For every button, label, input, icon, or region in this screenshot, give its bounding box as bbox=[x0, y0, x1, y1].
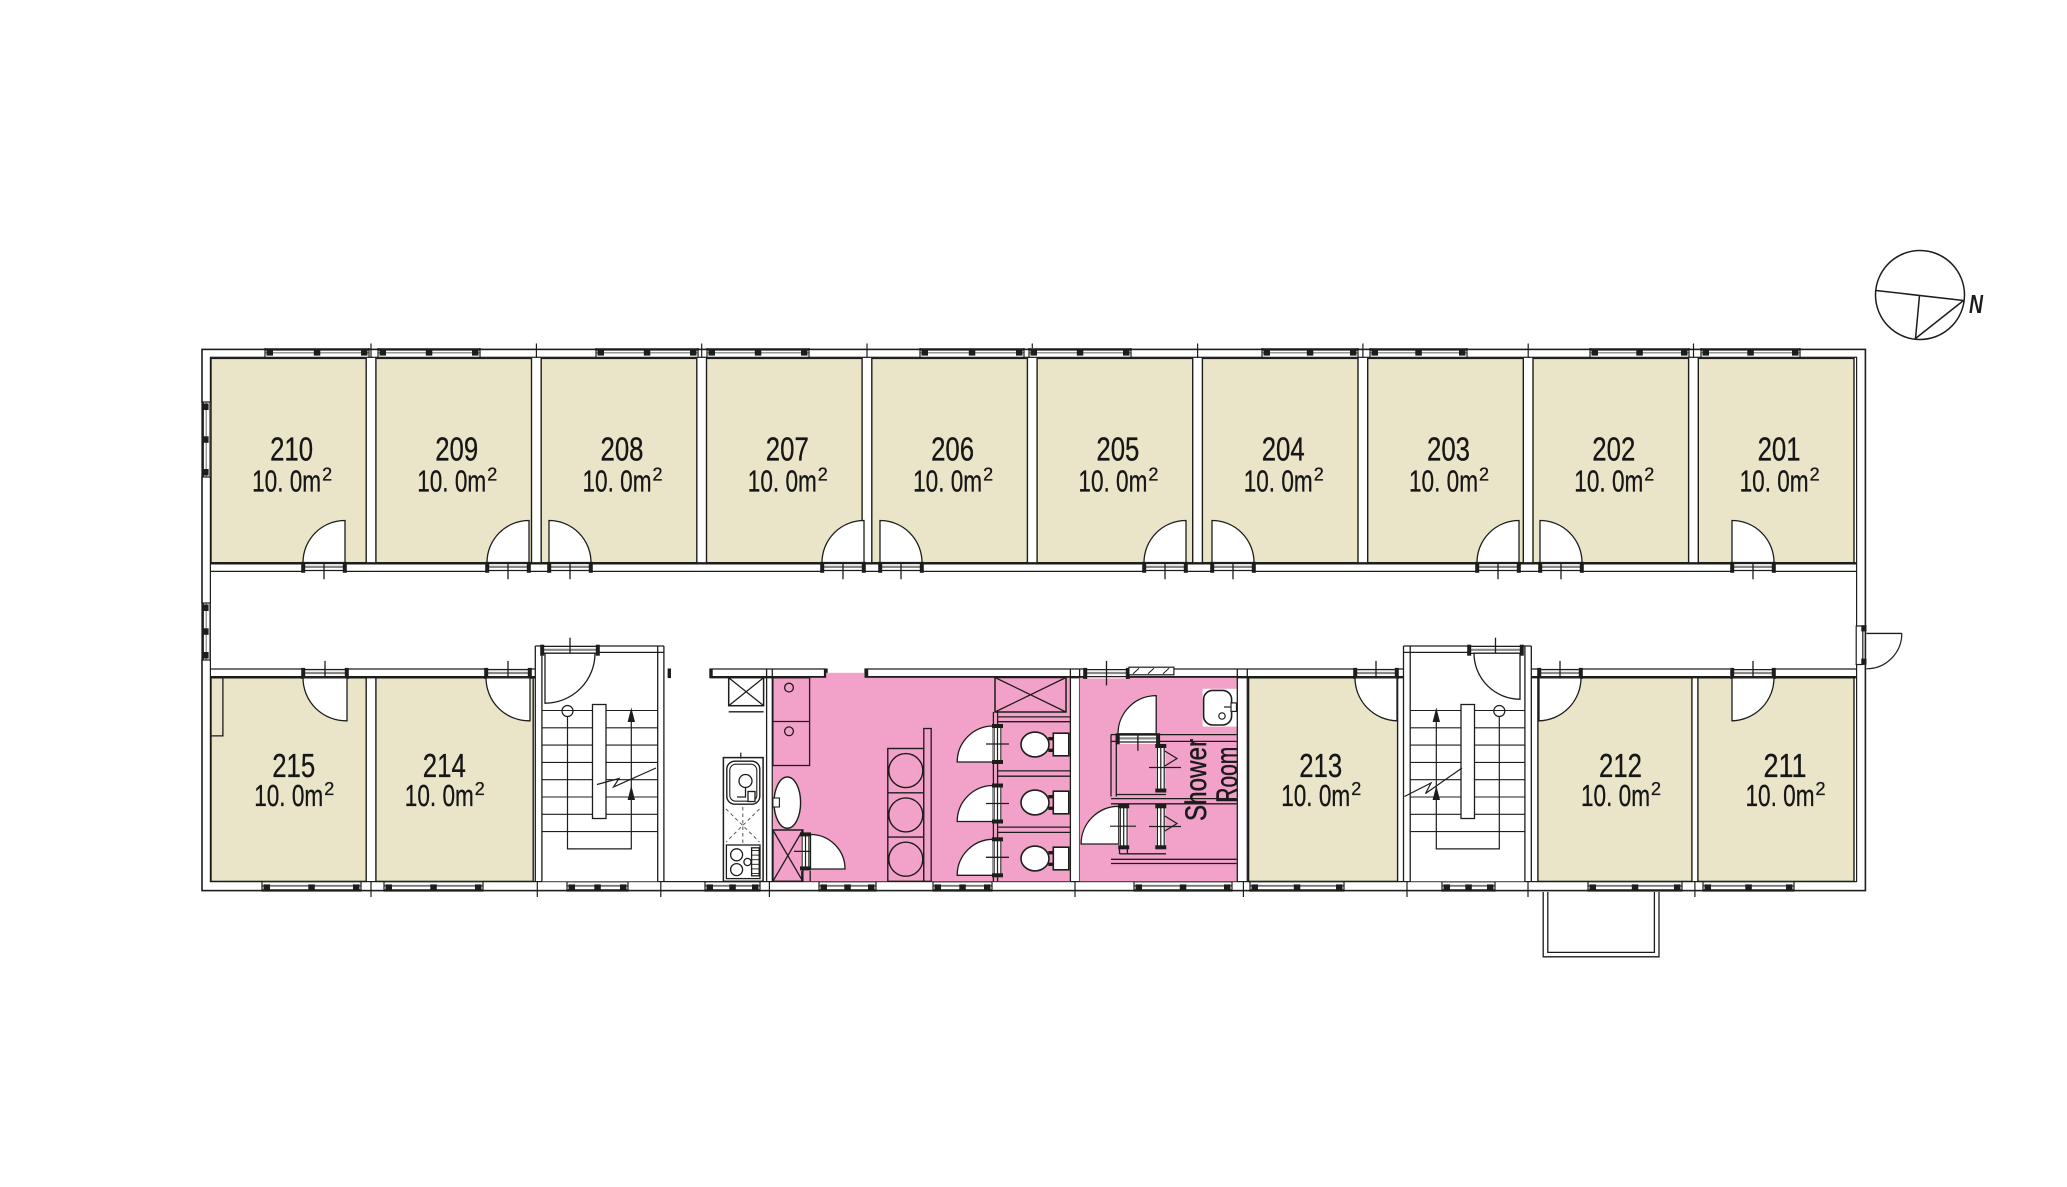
svg-text:10. 0m: 10. 0m bbox=[1740, 464, 1809, 499]
svg-text:2: 2 bbox=[653, 465, 663, 485]
svg-text:10. 0m: 10. 0m bbox=[1574, 464, 1643, 499]
svg-text:10. 0m: 10. 0m bbox=[405, 778, 474, 813]
svg-text:204: 204 bbox=[1262, 431, 1305, 468]
svg-text:2: 2 bbox=[818, 465, 828, 485]
svg-text:2: 2 bbox=[324, 779, 334, 799]
svg-text:206: 206 bbox=[931, 431, 974, 468]
svg-text:Room: Room bbox=[1211, 747, 1244, 803]
svg-text:2: 2 bbox=[983, 465, 993, 485]
svg-text:10. 0m: 10. 0m bbox=[748, 464, 817, 499]
svg-text:10. 0m: 10. 0m bbox=[252, 464, 321, 499]
svg-text:2: 2 bbox=[1644, 465, 1654, 485]
svg-text:2: 2 bbox=[1816, 779, 1826, 799]
svg-text:2: 2 bbox=[322, 465, 332, 485]
svg-text:210: 210 bbox=[270, 431, 313, 468]
svg-text:203: 203 bbox=[1427, 431, 1470, 468]
svg-text:10. 0m: 10. 0m bbox=[1244, 464, 1313, 499]
svg-text:209: 209 bbox=[435, 431, 478, 468]
svg-text:Shower: Shower bbox=[1180, 739, 1213, 821]
svg-text:10. 0m: 10. 0m bbox=[913, 464, 982, 499]
svg-text:10. 0m: 10. 0m bbox=[1078, 464, 1147, 499]
svg-text:10. 0m: 10. 0m bbox=[1746, 778, 1815, 813]
svg-text:202: 202 bbox=[1592, 431, 1635, 468]
svg-text:208: 208 bbox=[601, 431, 644, 468]
svg-text:10. 0m: 10. 0m bbox=[417, 464, 486, 499]
svg-text:10. 0m: 10. 0m bbox=[583, 464, 652, 499]
svg-text:207: 207 bbox=[766, 431, 809, 468]
svg-text:2: 2 bbox=[487, 465, 497, 485]
svg-text:2: 2 bbox=[1351, 779, 1361, 799]
svg-text:10. 0m: 10. 0m bbox=[1581, 778, 1650, 813]
svg-text:2: 2 bbox=[1479, 465, 1489, 485]
svg-text:205: 205 bbox=[1096, 431, 1139, 468]
svg-text:2: 2 bbox=[475, 779, 485, 799]
svg-text:N: N bbox=[1969, 289, 1984, 319]
svg-text:201: 201 bbox=[1758, 431, 1801, 468]
svg-text:2: 2 bbox=[1314, 465, 1324, 485]
svg-text:2: 2 bbox=[1148, 465, 1158, 485]
svg-text:2: 2 bbox=[1651, 779, 1661, 799]
svg-text:10. 0m: 10. 0m bbox=[1281, 778, 1350, 813]
svg-text:10. 0m: 10. 0m bbox=[254, 778, 323, 813]
svg-text:2: 2 bbox=[1810, 465, 1820, 485]
svg-text:10. 0m: 10. 0m bbox=[1409, 464, 1478, 499]
